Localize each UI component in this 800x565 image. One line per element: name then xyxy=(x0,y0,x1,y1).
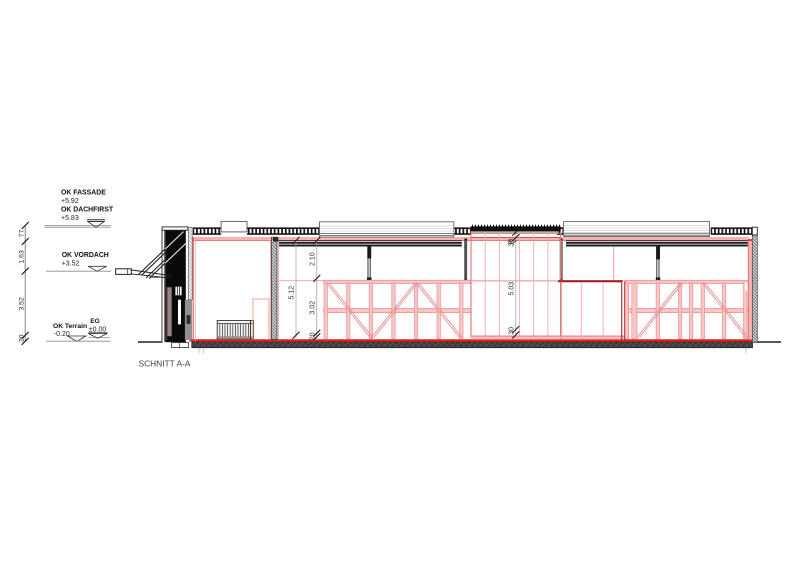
svg-text:OK FASSADE: OK FASSADE xyxy=(61,190,106,197)
svg-text:30: 30 xyxy=(508,327,515,335)
svg-text:-0.20: -0.20 xyxy=(54,331,70,338)
svg-text:OK Terrain: OK Terrain xyxy=(53,323,87,330)
svg-text:20: 20 xyxy=(19,334,26,342)
svg-text:77: 77 xyxy=(19,229,26,237)
svg-text:+3.52: +3.52 xyxy=(62,261,80,268)
svg-text:+5.83: +5.83 xyxy=(61,215,79,222)
svg-text:5.12: 5.12 xyxy=(289,286,296,300)
svg-text:2.10: 2.10 xyxy=(309,252,316,266)
svg-text:+5.92: +5.92 xyxy=(61,198,79,205)
svg-text:3.52: 3.52 xyxy=(19,297,26,310)
svg-text:20: 20 xyxy=(309,332,316,340)
svg-text:EG: EG xyxy=(90,318,100,325)
svg-text:5.03: 5.03 xyxy=(508,282,515,296)
svg-text:SCHNITT A-A: SCHNITT A-A xyxy=(139,358,191,368)
svg-text:3.02: 3.02 xyxy=(309,301,316,315)
svg-text:OK VORDACH: OK VORDACH xyxy=(62,252,109,259)
svg-text:1.63: 1.63 xyxy=(19,250,26,263)
svg-text:OK DACHFIRST: OK DACHFIRST xyxy=(61,207,114,214)
